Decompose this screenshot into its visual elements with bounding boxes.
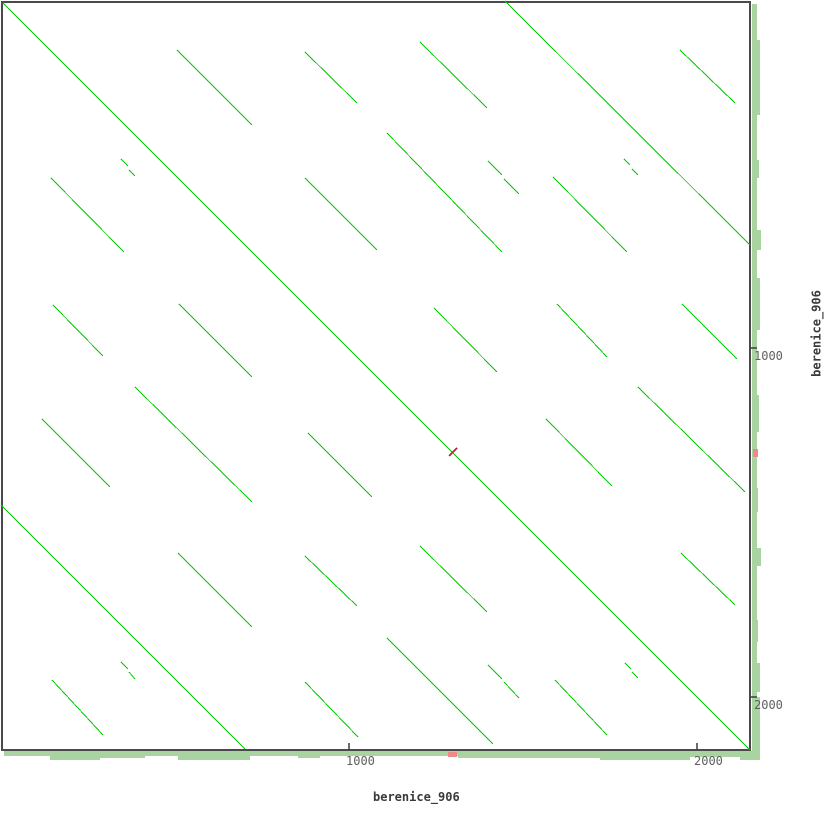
repeat-match-segment xyxy=(681,553,735,605)
bottom-density-bump xyxy=(600,751,690,760)
repeat-match-segment xyxy=(632,672,638,678)
main-diagonal-match xyxy=(3,3,750,750)
repeat-match-segment xyxy=(53,305,103,356)
right-density-bump xyxy=(752,395,759,432)
y-tick-label-1000: 1000 xyxy=(754,350,783,362)
repeat-match-segment xyxy=(420,42,487,108)
bottom-density-bump xyxy=(100,751,145,758)
repeat-match-segment xyxy=(557,304,607,357)
right-density-bump xyxy=(752,40,760,115)
repeat-match-segment xyxy=(387,133,502,252)
right-density-bump xyxy=(752,663,760,692)
repeat-match-segment xyxy=(42,419,110,487)
repeat-match-segment xyxy=(387,638,493,744)
dotplot-plot-area xyxy=(0,0,830,830)
repeat-match-segment xyxy=(308,433,372,497)
repeat-match-segment xyxy=(129,170,135,176)
repeat-match-segment xyxy=(488,161,502,175)
repeat-match-segment xyxy=(178,553,252,627)
bottom-density-bump xyxy=(50,751,100,760)
repeat-match-segment xyxy=(177,50,252,125)
repeat-match-segment xyxy=(129,672,135,679)
bottom-band-inverted-mark xyxy=(448,752,457,757)
right-density-bump xyxy=(752,548,761,566)
right-density-bump xyxy=(752,488,758,512)
repeat-match-segment xyxy=(121,662,128,669)
dotplot-canvas: 1000 2000 1000 2000 berenice_906 berenic… xyxy=(0,0,830,830)
repeat-match-segment xyxy=(624,159,630,165)
repeat-match-segment xyxy=(505,1,750,245)
repeat-match-segment xyxy=(305,178,377,250)
right-density-bump xyxy=(752,160,759,178)
x-axis-label: berenice_906 xyxy=(373,791,460,804)
repeat-match-segment xyxy=(135,387,252,502)
repeat-match-segment xyxy=(305,556,357,606)
repeat-match-segment xyxy=(546,419,612,486)
repeat-match-segment xyxy=(305,682,358,737)
repeat-match-segment xyxy=(52,680,103,735)
right-density-band xyxy=(752,4,757,757)
repeat-match-segment xyxy=(1,505,245,749)
repeat-match-segment xyxy=(504,179,519,194)
repeat-match-segment xyxy=(305,52,357,103)
repeat-match-segment xyxy=(179,304,252,377)
repeat-match-segment xyxy=(420,546,487,612)
right-density-bump xyxy=(752,620,758,642)
repeat-match-segment xyxy=(51,178,124,252)
repeat-match-segment xyxy=(680,50,735,103)
repeat-match-segment xyxy=(682,304,737,359)
bottom-density-bump xyxy=(298,751,320,758)
repeat-match-segment xyxy=(638,387,745,492)
y-tick-label-2000: 2000 xyxy=(754,699,783,711)
x-tick-label-1000: 1000 xyxy=(346,755,375,767)
repeat-match-segment xyxy=(553,177,627,252)
inverted-match-segment xyxy=(449,448,457,456)
repeat-match-segment xyxy=(625,663,631,669)
repeat-match-segment xyxy=(504,682,519,698)
x-tick-label-2000: 2000 xyxy=(694,755,723,767)
repeat-match-segment xyxy=(632,169,638,175)
repeat-match-segment xyxy=(434,308,497,372)
y-axis-label: berenice_906 xyxy=(811,289,824,379)
right-band-inverted-mark xyxy=(753,449,758,457)
repeat-match-segment xyxy=(488,665,502,679)
right-density-bump xyxy=(752,278,760,330)
repeat-match-segment xyxy=(555,680,607,735)
right-density-bump xyxy=(752,230,761,250)
repeat-match-segment xyxy=(121,159,128,166)
bottom-density-bump xyxy=(458,751,600,758)
bottom-density-bump xyxy=(178,751,250,760)
